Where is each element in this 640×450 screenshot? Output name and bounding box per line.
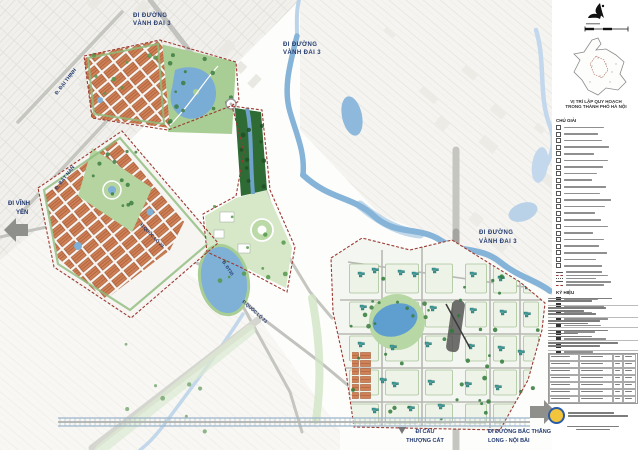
tree-dot bbox=[480, 402, 483, 405]
tree-dot bbox=[111, 192, 114, 195]
city-block bbox=[494, 370, 517, 395]
legend-symbol bbox=[556, 250, 561, 255]
legend-text bbox=[564, 146, 609, 148]
tree-dot bbox=[457, 314, 460, 317]
table-cell bbox=[613, 396, 623, 403]
city-block bbox=[466, 264, 487, 293]
legend-symbol bbox=[556, 278, 563, 279]
tree-dot bbox=[228, 276, 231, 279]
legend-text bbox=[566, 278, 596, 280]
title-block-section bbox=[548, 328, 638, 341]
title-block-section bbox=[548, 306, 638, 319]
tree-dot bbox=[247, 179, 251, 183]
tree-dot bbox=[463, 286, 466, 289]
legend-symbol bbox=[556, 231, 561, 236]
table-cell bbox=[549, 382, 579, 389]
tree-dot bbox=[400, 362, 404, 366]
tree-dot bbox=[460, 382, 464, 386]
tree-dot bbox=[499, 274, 504, 279]
city-blob bbox=[247, 74, 262, 89]
legend-item bbox=[556, 237, 638, 242]
legend-text bbox=[564, 232, 593, 234]
masterplan-map: ĐI ĐƯỜNG VÀNH ĐAI 3 ĐI ĐƯỜNG VÀNH ĐAI 3 … bbox=[0, 0, 640, 450]
tree-dot bbox=[371, 300, 374, 303]
legend-text bbox=[564, 179, 592, 181]
legend-text bbox=[564, 140, 602, 142]
legend-text bbox=[566, 284, 604, 286]
tree-dot bbox=[283, 272, 288, 277]
legend-symbol bbox=[556, 165, 561, 170]
tree-dot bbox=[369, 305, 373, 309]
legend-text bbox=[564, 212, 595, 214]
city-block bbox=[466, 370, 487, 395]
legend-text bbox=[564, 153, 594, 155]
legend-symbol bbox=[556, 184, 561, 189]
legend-item bbox=[556, 244, 638, 249]
table-cell bbox=[579, 375, 613, 382]
legend-group-lines bbox=[556, 271, 638, 285]
label-bac-thang-long: ĐI ĐƯỜNG BẮC THĂNG bbox=[488, 427, 551, 435]
label-bac-thang-long-2: LONG - NỘI BÀI bbox=[488, 436, 530, 444]
tree-dot bbox=[500, 360, 504, 364]
legend-text bbox=[564, 160, 608, 162]
legend-text bbox=[564, 259, 596, 261]
table-cell bbox=[623, 389, 636, 396]
legend-symbol bbox=[556, 244, 561, 249]
title-block-table bbox=[548, 353, 638, 404]
title-block bbox=[548, 296, 638, 431]
legend-item bbox=[556, 125, 638, 130]
tree-dot bbox=[455, 398, 458, 401]
legend-item bbox=[556, 257, 638, 262]
tree-dot bbox=[491, 279, 494, 282]
inset-map-caption: VỊ TRÍ LẬP QUY HOẠCH TRONG THÀNH PHỐ HÀ … bbox=[552, 99, 640, 110]
tree-dot bbox=[484, 411, 488, 415]
legend-item bbox=[556, 231, 638, 236]
tree-dot bbox=[168, 61, 173, 66]
legend-symbol bbox=[556, 132, 561, 137]
legend-text bbox=[564, 199, 611, 201]
tree-dot bbox=[94, 75, 97, 78]
tree-dot bbox=[112, 77, 117, 82]
tree-dot bbox=[422, 301, 427, 306]
legend-symbol bbox=[556, 281, 563, 282]
tree-dot bbox=[392, 406, 396, 410]
legend-text bbox=[564, 239, 604, 241]
legend-symbol bbox=[556, 217, 561, 222]
legend-symbol bbox=[556, 158, 561, 163]
tree-dot bbox=[125, 343, 128, 346]
label-vanh-dai-3-top-2: VÀNH ĐAI 3 bbox=[283, 49, 321, 56]
legend-item bbox=[556, 284, 638, 286]
masterplan-map-page: ĐI ĐƯỜNG VÀNH ĐAI 3 ĐI ĐƯỜNG VÀNH ĐAI 3 … bbox=[0, 0, 640, 450]
legend-text bbox=[564, 219, 601, 221]
legend2-title: KÝ HIỆU bbox=[556, 290, 638, 295]
tree-dot bbox=[160, 396, 165, 401]
tree-dot bbox=[536, 328, 540, 332]
label-cau-thuong-cat-2: THƯỢNG CÁT bbox=[406, 437, 444, 444]
tree-dot bbox=[198, 386, 202, 390]
legend-symbol bbox=[556, 275, 563, 276]
city-block bbox=[386, 264, 419, 293]
tree-dot bbox=[374, 322, 377, 325]
legend-item bbox=[556, 281, 638, 283]
legend-symbol bbox=[556, 145, 561, 150]
table-cell bbox=[579, 389, 613, 396]
title-block-section bbox=[548, 341, 638, 351]
tree-dot bbox=[482, 376, 487, 381]
tree-dot bbox=[262, 158, 267, 163]
city-block bbox=[494, 302, 517, 327]
city-block bbox=[466, 302, 487, 327]
table-cell bbox=[623, 368, 636, 375]
title-block-section bbox=[548, 318, 638, 328]
city-block bbox=[466, 336, 487, 361]
legend-item bbox=[556, 138, 638, 143]
table-cell bbox=[613, 389, 623, 396]
legend-item bbox=[556, 263, 638, 268]
tree-dot bbox=[263, 232, 267, 236]
tree-dot bbox=[478, 399, 481, 402]
legend-item bbox=[556, 198, 638, 203]
table-cell bbox=[623, 382, 636, 389]
tree-dot bbox=[531, 386, 535, 390]
table-cell bbox=[579, 354, 613, 361]
table-cell bbox=[549, 361, 579, 368]
label-vanh-dai-3-right: ĐI ĐƯỜNG bbox=[479, 228, 513, 236]
title-block-section bbox=[548, 296, 638, 306]
tree-dot bbox=[488, 354, 491, 357]
legend-text bbox=[564, 245, 599, 247]
legend-text bbox=[564, 173, 597, 175]
tree-dot bbox=[242, 271, 246, 275]
tree-dot bbox=[262, 184, 266, 188]
tree-dot bbox=[247, 128, 251, 132]
legend-item bbox=[556, 178, 638, 183]
legend-symbol bbox=[556, 138, 561, 143]
legend-item bbox=[556, 145, 638, 150]
tree-dot bbox=[396, 301, 399, 304]
legend-text bbox=[566, 271, 602, 273]
tree-dot bbox=[405, 306, 409, 310]
tree-dot bbox=[466, 359, 470, 363]
tree-dot bbox=[203, 57, 207, 61]
tree-dot bbox=[498, 292, 501, 295]
tree-dot bbox=[281, 240, 285, 244]
label-cau-thuong-cat: ĐI CẦU bbox=[416, 428, 435, 435]
tree-dot bbox=[210, 71, 215, 76]
tree-dot bbox=[126, 61, 129, 64]
tree-dot bbox=[245, 158, 249, 162]
tree-dot bbox=[106, 152, 110, 156]
legend-item bbox=[556, 158, 638, 163]
legend-symbol bbox=[556, 237, 561, 242]
tree-dot bbox=[366, 324, 371, 329]
city-block bbox=[426, 264, 453, 293]
tree-dot bbox=[134, 151, 137, 154]
table-cell bbox=[579, 368, 613, 375]
city-block bbox=[386, 370, 419, 395]
inset-caption-line2: TRONG THÀNH PHỐ HÀ NỘI bbox=[552, 104, 640, 109]
arrow-down-thuong-cat bbox=[398, 427, 406, 434]
legend-symbol bbox=[556, 204, 561, 209]
legend-item bbox=[556, 184, 638, 189]
city-blob bbox=[234, 61, 247, 74]
table-cell bbox=[613, 361, 623, 368]
tree-dot bbox=[357, 357, 360, 360]
legend-text bbox=[564, 186, 606, 188]
table-cell bbox=[613, 382, 623, 389]
tree-dot bbox=[168, 119, 172, 123]
tree-dot bbox=[479, 328, 482, 331]
label-di-vinh-yen-2: YÊN bbox=[16, 208, 28, 216]
table-cell bbox=[623, 375, 636, 382]
tree-dot bbox=[493, 328, 497, 332]
legend-text bbox=[564, 166, 603, 168]
table-cell bbox=[549, 368, 579, 375]
legend-symbol bbox=[556, 178, 561, 183]
tree-dot bbox=[187, 382, 191, 386]
tree-dot bbox=[381, 277, 385, 281]
legend-symbol bbox=[556, 125, 561, 130]
tree-dot bbox=[112, 160, 116, 164]
tree-dot bbox=[218, 278, 223, 283]
tree-dot bbox=[129, 201, 134, 206]
label-vanh-dai-3-nw: ĐI ĐƯỜNG bbox=[133, 11, 167, 19]
tree-dot bbox=[245, 166, 249, 170]
company-logo bbox=[548, 407, 565, 424]
label-di-vinh-yen: ĐI VĨNH bbox=[8, 200, 30, 207]
table-cell bbox=[613, 368, 623, 375]
city-block bbox=[524, 370, 539, 395]
tree-dot bbox=[384, 353, 387, 356]
tree-dot bbox=[261, 267, 264, 270]
legend-text bbox=[564, 193, 600, 195]
legend-item bbox=[556, 151, 638, 156]
tree-dot bbox=[407, 406, 410, 409]
tree-dot bbox=[427, 309, 430, 312]
tree-dot bbox=[203, 429, 207, 433]
tree-dot bbox=[351, 388, 355, 392]
tree-dot bbox=[174, 90, 177, 93]
legend-text bbox=[564, 226, 608, 228]
legend-item bbox=[556, 171, 638, 176]
tree-dot bbox=[485, 364, 489, 368]
table-cell bbox=[549, 396, 579, 403]
tree-dot bbox=[378, 301, 381, 304]
legend-symbol bbox=[556, 211, 561, 216]
table-cell bbox=[549, 354, 579, 361]
tree-dot bbox=[174, 104, 179, 109]
table-cell bbox=[623, 361, 636, 368]
legend-item bbox=[556, 211, 638, 216]
tree-dot bbox=[212, 107, 216, 111]
legend-title: CHÚ GIẢI bbox=[556, 118, 638, 123]
legend-item bbox=[556, 275, 638, 277]
tree-dot bbox=[231, 216, 234, 219]
tree-dot bbox=[450, 329, 455, 334]
legend-text bbox=[566, 281, 611, 283]
table-cell bbox=[579, 396, 613, 403]
tree-dot bbox=[126, 183, 130, 187]
legend-item bbox=[556, 278, 638, 280]
legend-symbol bbox=[556, 191, 561, 196]
tree-dot bbox=[424, 315, 428, 319]
title-block-footer bbox=[548, 407, 638, 424]
legend-item bbox=[556, 250, 638, 255]
tree-dot bbox=[122, 204, 125, 207]
tree-dot bbox=[486, 399, 490, 403]
legend-symbol bbox=[556, 171, 561, 176]
legend-text bbox=[564, 133, 598, 135]
legend-symbol bbox=[556, 257, 561, 262]
table-cell bbox=[549, 389, 579, 396]
legend-text bbox=[564, 265, 602, 267]
legend-item bbox=[556, 204, 638, 209]
table-cell bbox=[549, 375, 579, 382]
legend-item bbox=[556, 217, 638, 222]
tree-dot bbox=[181, 81, 186, 86]
city-block bbox=[350, 404, 379, 423]
label-vanh-dai-3-top: ĐI ĐƯỜNG bbox=[283, 40, 317, 48]
table-cell bbox=[623, 354, 636, 361]
tree-dot bbox=[97, 162, 101, 166]
tree-dot bbox=[459, 299, 462, 302]
tree-dot bbox=[153, 56, 157, 60]
tree-dot bbox=[185, 415, 188, 418]
legend-item bbox=[556, 271, 638, 273]
legend-item bbox=[556, 165, 638, 170]
table-cell bbox=[613, 375, 623, 382]
legend-text bbox=[564, 252, 607, 254]
label-vanh-dai-3-right-2: VÀNH ĐAI 3 bbox=[479, 238, 517, 245]
tree-dot bbox=[241, 133, 246, 138]
city-block bbox=[426, 404, 453, 423]
legend-text bbox=[566, 275, 608, 277]
tree-dot bbox=[120, 178, 124, 182]
legend-text bbox=[564, 127, 604, 129]
tree-dot bbox=[246, 246, 249, 249]
zone-c-central-park bbox=[193, 108, 292, 319]
tree-dot bbox=[92, 174, 95, 177]
label-vanh-dai-3-nw-2: VÀNH ĐAI 3 bbox=[133, 20, 171, 27]
tree-dot bbox=[154, 384, 157, 387]
tree-dot bbox=[442, 337, 446, 341]
tree-dot bbox=[259, 140, 262, 143]
table-cell bbox=[579, 382, 613, 389]
legend-text bbox=[564, 206, 605, 208]
legend-symbol bbox=[556, 263, 561, 268]
legend-item bbox=[556, 132, 638, 137]
tree-dot bbox=[411, 314, 415, 318]
table-cell bbox=[579, 361, 613, 368]
city-block bbox=[426, 302, 453, 327]
legend-symbol bbox=[556, 198, 561, 203]
tree-dot bbox=[363, 313, 368, 318]
table-cell bbox=[623, 396, 636, 403]
legend-item bbox=[556, 191, 638, 196]
tree-dot bbox=[388, 410, 392, 414]
legend-group-areas bbox=[556, 125, 638, 268]
legend-symbol bbox=[556, 272, 563, 273]
tree-dot bbox=[104, 92, 107, 95]
city-block bbox=[466, 404, 487, 423]
tree-dot bbox=[181, 109, 185, 113]
tree-dot bbox=[121, 86, 124, 89]
tree-dot bbox=[125, 407, 129, 411]
city-block bbox=[494, 336, 517, 361]
legend-symbol bbox=[556, 285, 563, 286]
legend-item bbox=[556, 224, 638, 229]
tree-dot bbox=[266, 275, 270, 279]
legend-symbol bbox=[556, 224, 561, 229]
legend-symbol bbox=[556, 151, 561, 156]
tree-dot bbox=[350, 325, 353, 328]
tree-dot bbox=[171, 53, 175, 57]
table-cell bbox=[613, 354, 623, 361]
tree-dot bbox=[184, 70, 187, 73]
tree-dot bbox=[147, 53, 152, 58]
tree-dot bbox=[125, 150, 128, 153]
